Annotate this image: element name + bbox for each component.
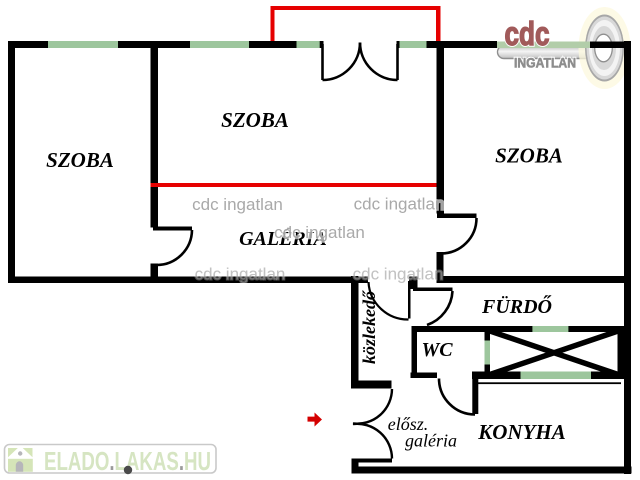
svg-text:cdc ingatlan: cdc ingatlan xyxy=(354,195,445,214)
svg-text:FÜRDŐ: FÜRDŐ xyxy=(481,294,552,318)
svg-text:cdc ingatlan: cdc ingatlan xyxy=(192,195,283,214)
svg-text:galéria: galéria xyxy=(405,431,457,451)
svg-text:INGATLAN: INGATLAN xyxy=(514,56,576,71)
svg-text:közlekedő: közlekedő xyxy=(359,290,379,364)
svg-text:SZOBA: SZOBA xyxy=(495,144,563,168)
svg-text:cdc ingatlan: cdc ingatlan xyxy=(353,265,444,284)
svg-text:cdc ingatlan: cdc ingatlan xyxy=(195,265,286,284)
svg-text:SZOBA: SZOBA xyxy=(221,108,289,132)
svg-text:SZOBA: SZOBA xyxy=(46,148,114,172)
svg-text:cdc: cdc xyxy=(505,15,550,52)
svg-text:cdc ingatlan: cdc ingatlan xyxy=(274,223,365,242)
svg-text:WC: WC xyxy=(421,339,453,361)
svg-text:KONYHA: KONYHA xyxy=(477,420,566,444)
